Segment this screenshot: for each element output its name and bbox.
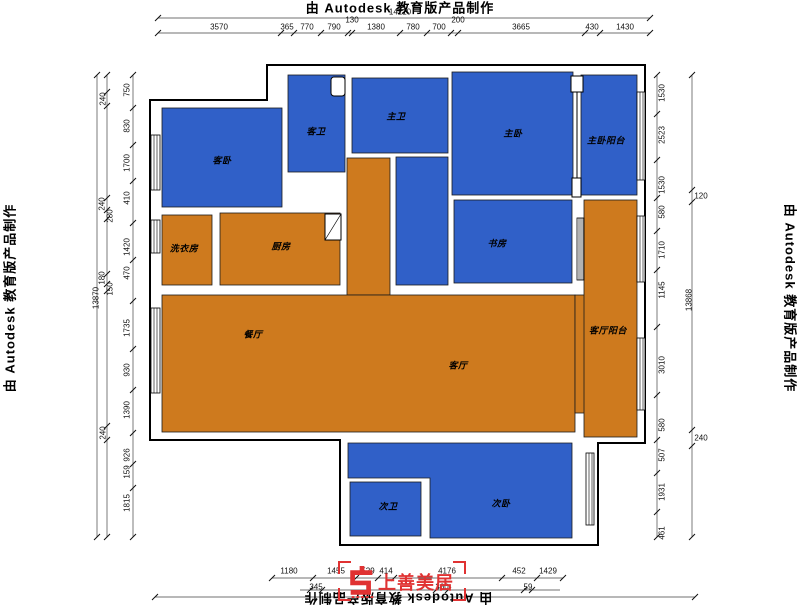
dimension-label-right: 507 — [658, 448, 667, 461]
room-label-master-bathroom: 主卫 — [386, 110, 405, 123]
room-label-living-room: 客厅 — [448, 359, 467, 372]
dimension-label-left: 1815 — [123, 494, 132, 512]
wall-pillar — [572, 178, 581, 197]
dimension-label-top: 790 — [327, 23, 340, 32]
dimension-label-right: 120 — [694, 192, 707, 201]
dimension-label-right: 2523 — [658, 126, 667, 144]
room-label-guest-bathroom: 客卫 — [306, 125, 325, 138]
window-symbol — [151, 220, 160, 253]
dimension-label-right: 13868 — [685, 289, 694, 311]
dimension-label-right: 1710 — [658, 241, 667, 259]
watermark-top: 由 Autodesk 教育版产品制作 — [306, 0, 494, 17]
company-logo: 上善美居 — [338, 561, 466, 601]
room-living-balcony-link — [575, 295, 585, 413]
room-living-balcony — [584, 200, 637, 437]
floor-plan-drawing — [0, 0, 800, 607]
room-label-second-bedroom: 次卧 — [491, 497, 510, 510]
dimension-label-right: 580 — [658, 205, 667, 218]
dimension-label-bottom: 1180 — [280, 567, 297, 576]
dimension-label-top: 770 — [300, 23, 313, 32]
wall-pillar — [571, 76, 583, 92]
logo-text: 上善美居 — [378, 569, 454, 595]
room-label-second-bathroom: 次卫 — [378, 500, 397, 513]
dimension-label-right: 1145 — [658, 281, 667, 298]
room-study — [454, 200, 572, 283]
watermark-left: 由 Autodesk 教育版产品制作 — [0, 204, 19, 392]
window-symbol — [637, 92, 645, 180]
window-symbol — [637, 216, 645, 282]
dimension-label-left: 1700 — [123, 154, 132, 172]
room-label-master-balcony: 主卧阳台 — [587, 134, 625, 147]
room-label-study: 书房 — [487, 237, 506, 250]
dimension-label-top: 1380 — [367, 23, 385, 32]
watermark-right: 由 Autodesk 教育版产品制作 — [782, 204, 800, 392]
room-label-guest-bedroom: 客卧 — [212, 154, 231, 167]
dimension-label-left: 830 — [123, 119, 132, 132]
dimension-label-top: 130 — [345, 16, 358, 25]
dimension-label-left: 1735 — [123, 319, 132, 337]
dimension-label-top: 200 — [451, 16, 464, 25]
toilet-symbol — [331, 77, 345, 96]
dimension-label-top: 3570 — [210, 23, 228, 32]
dimension-label-top: 1430 — [616, 23, 634, 32]
dimension-label-right: 461 — [658, 526, 667, 539]
window-symbol — [637, 338, 645, 410]
dimension-label-top: 3665 — [512, 23, 530, 32]
dimension-label-left: 930 — [123, 363, 132, 376]
dimension-label-top: 430 — [585, 23, 598, 32]
dimension-label-left: 159 — [123, 465, 132, 478]
dimension-label-left: 750 — [123, 83, 132, 96]
dimension-label-left: 13870 — [92, 287, 101, 309]
window-symbol — [151, 135, 160, 190]
dimension-label-left: 410 — [123, 191, 132, 204]
dimension-label-left: 240 — [99, 426, 108, 439]
dimension-label-left: 280 — [106, 209, 115, 222]
dimension-label-bottom: 1429 — [539, 567, 557, 576]
dimension-label-right: 3010 — [658, 356, 667, 374]
dimension-label-top: 780 — [406, 23, 419, 32]
dimension-label-right: 1530 — [658, 84, 667, 102]
dimension-label-bottom: 59 — [524, 583, 533, 592]
dimension-label-left: 1420 — [123, 238, 132, 256]
logo-glyph-icon — [346, 565, 378, 599]
window-symbol — [151, 308, 160, 393]
dimension-label-left: 240 — [99, 92, 108, 105]
dimension-label-bottom: 452 — [512, 567, 525, 576]
room-label-master-bedroom: 主卧 — [503, 127, 522, 140]
dimension-label-left: 1390 — [123, 401, 132, 419]
room-dining-living — [162, 295, 575, 432]
dimension-label-right: 580 — [658, 418, 667, 431]
dimension-label-right: 1931 — [658, 483, 667, 501]
window-symbol — [586, 453, 594, 525]
dimension-label-top: 365 — [280, 23, 293, 32]
logo-corner-bracket — [453, 588, 466, 601]
room-label-laundry-room: 洗衣房 — [170, 242, 199, 255]
dimension-label-right: 1530 — [658, 176, 667, 194]
room-label-kitchen: 厨房 — [271, 240, 290, 253]
cad-floorplan-canvas: 1421035703657707901301380780700200366543… — [0, 0, 800, 607]
room-hall — [396, 157, 448, 285]
room-corridor — [347, 158, 390, 295]
dimension-label-right: 240 — [694, 434, 707, 443]
dimension-label-top: 700 — [432, 23, 445, 32]
dimension-label-left: 150 — [106, 282, 115, 295]
room-label-dining-room: 餐厅 — [243, 328, 262, 341]
logo-corner-bracket — [453, 561, 466, 574]
room-label-living-balcony: 客厅阳台 — [589, 324, 627, 337]
dimension-label-left: 926 — [123, 448, 132, 461]
dimension-label-left: 470 — [123, 266, 132, 279]
